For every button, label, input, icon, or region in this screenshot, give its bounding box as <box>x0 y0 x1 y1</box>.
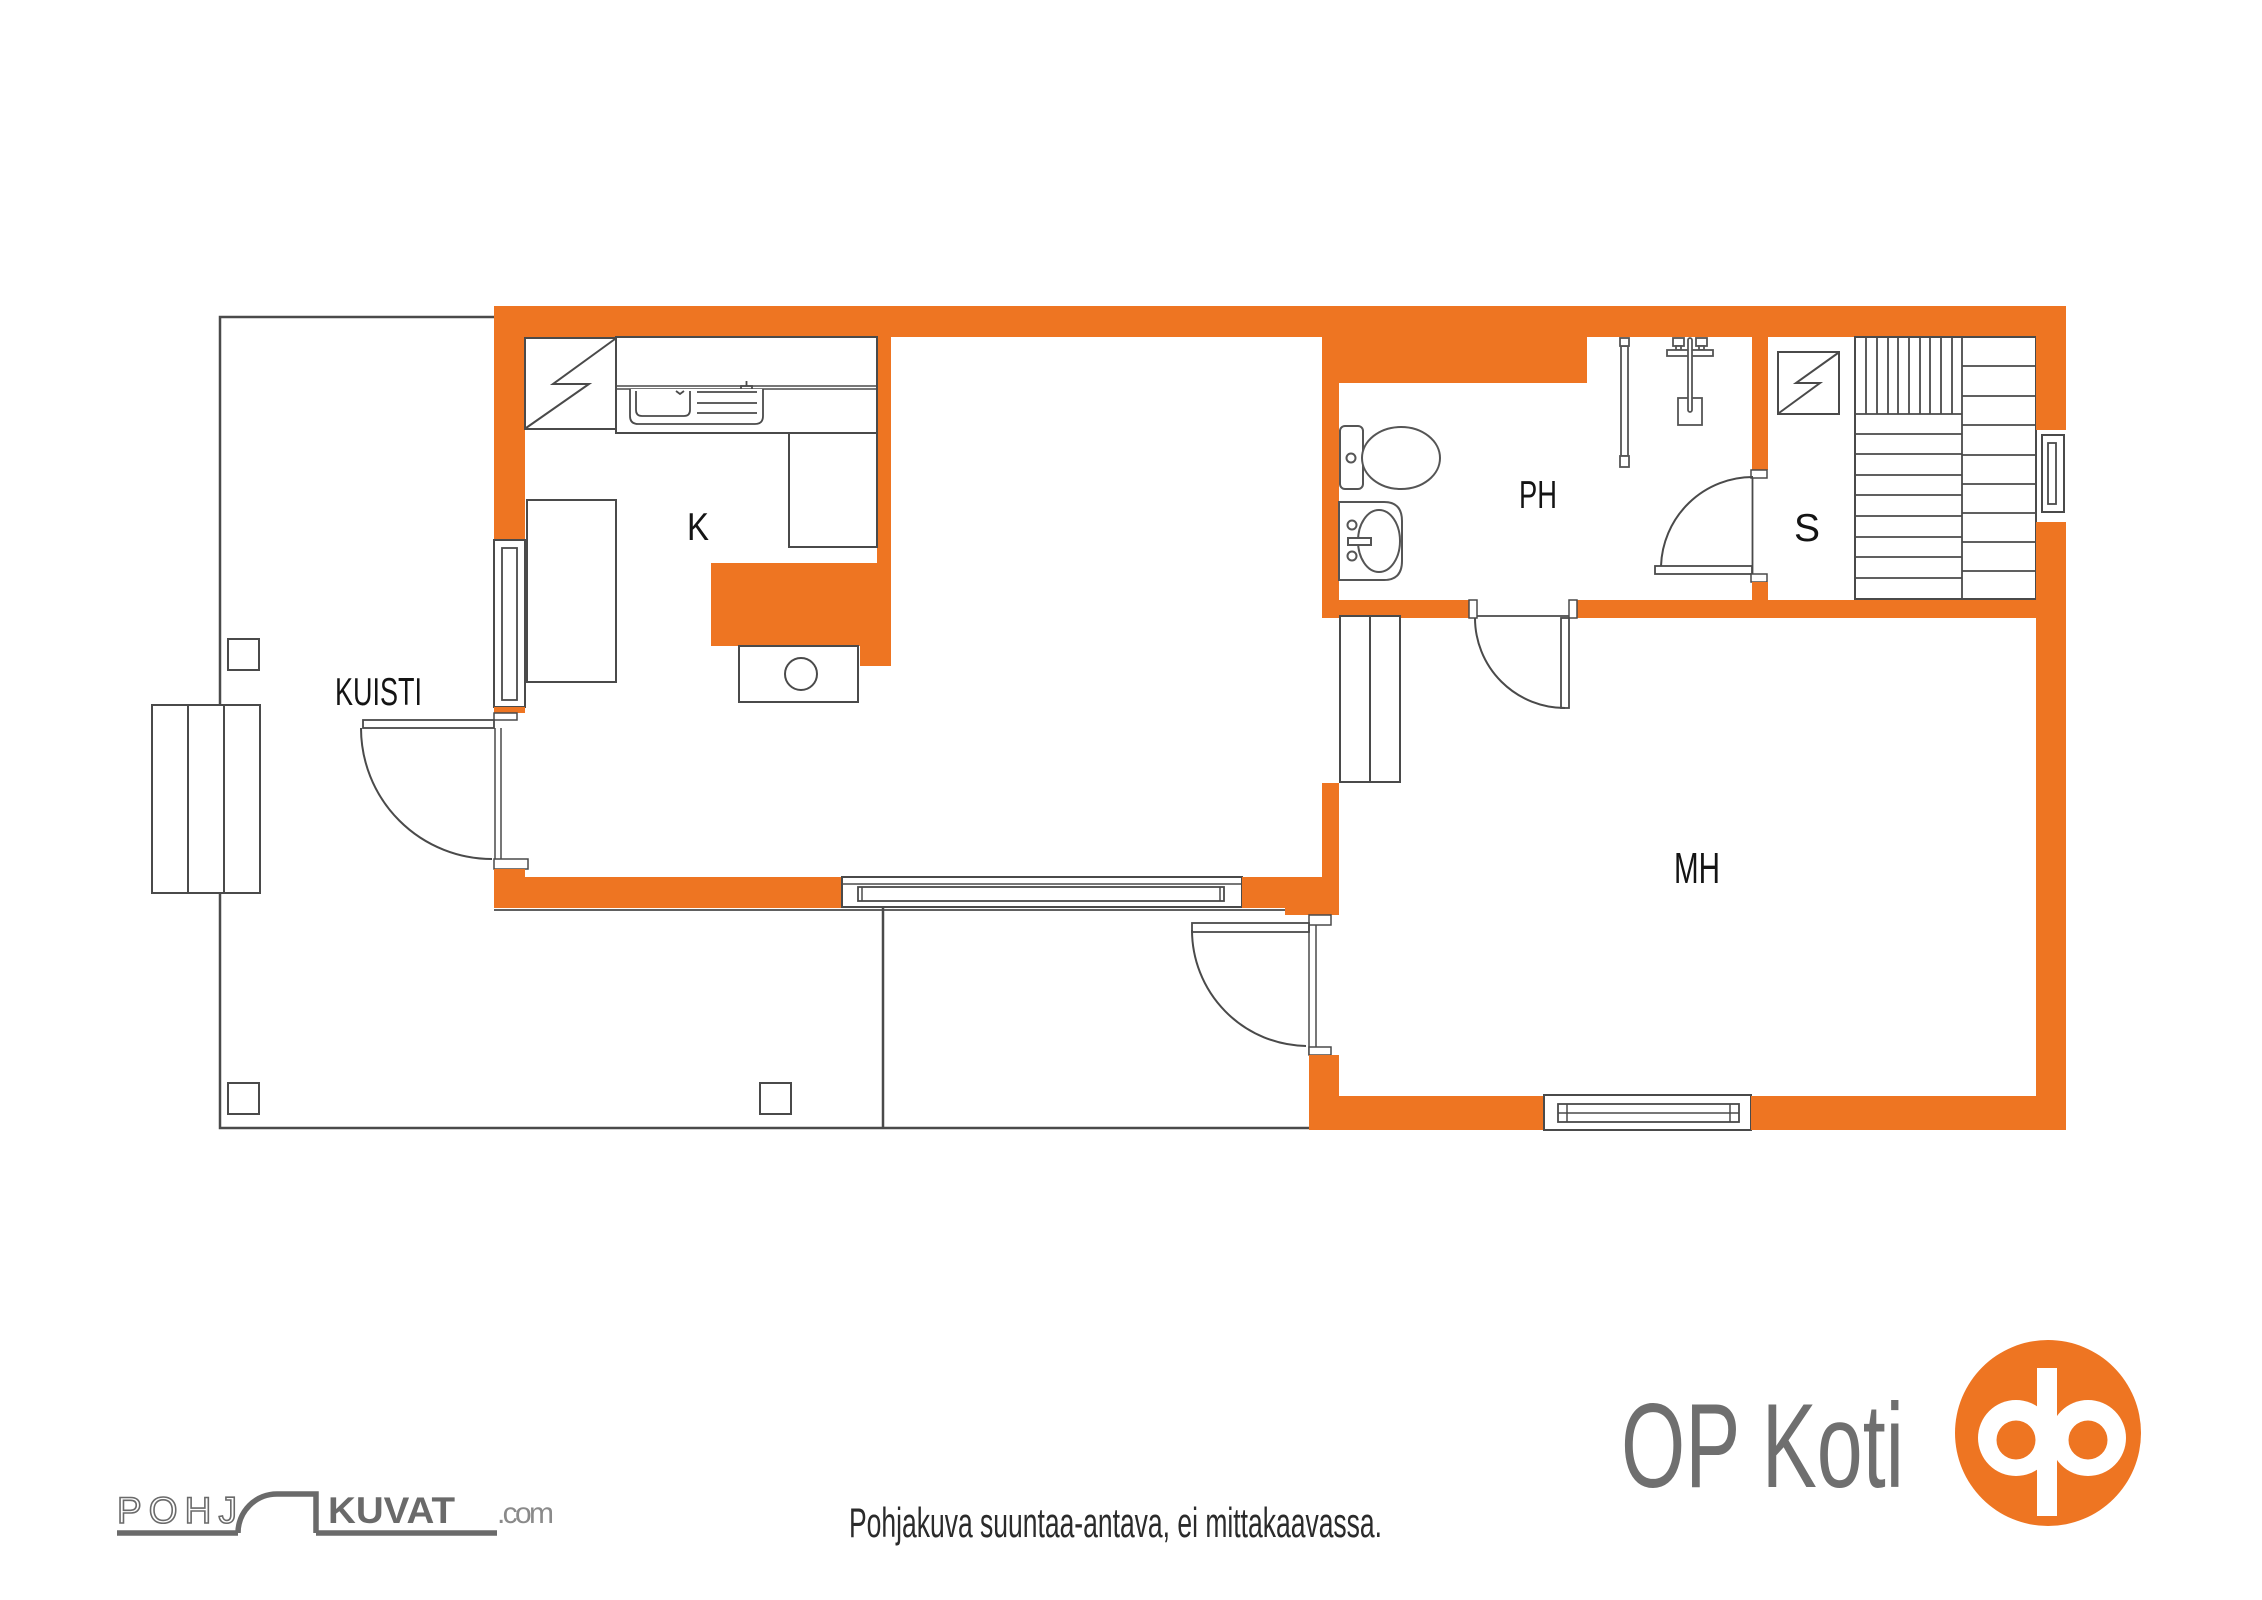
svg-text:Pohjakuva suuntaa-antava, ei m: Pohjakuva suuntaa-antava, ei mittakaavas… <box>849 1499 1382 1546</box>
svg-text:.com: .com <box>497 1497 554 1530</box>
svg-text:OP Koti: OP Koti <box>1621 1379 1904 1513</box>
svg-text:KUISTI: KUISTI <box>335 671 422 714</box>
svg-text:KUVAT: KUVAT <box>328 1490 455 1531</box>
svg-text:S: S <box>1794 507 1820 550</box>
svg-text:K: K <box>687 506 709 549</box>
svg-text:MH: MH <box>1674 844 1720 893</box>
svg-text:POHJ: POHJ <box>117 1490 237 1531</box>
svg-text:PH: PH <box>1519 474 1557 517</box>
